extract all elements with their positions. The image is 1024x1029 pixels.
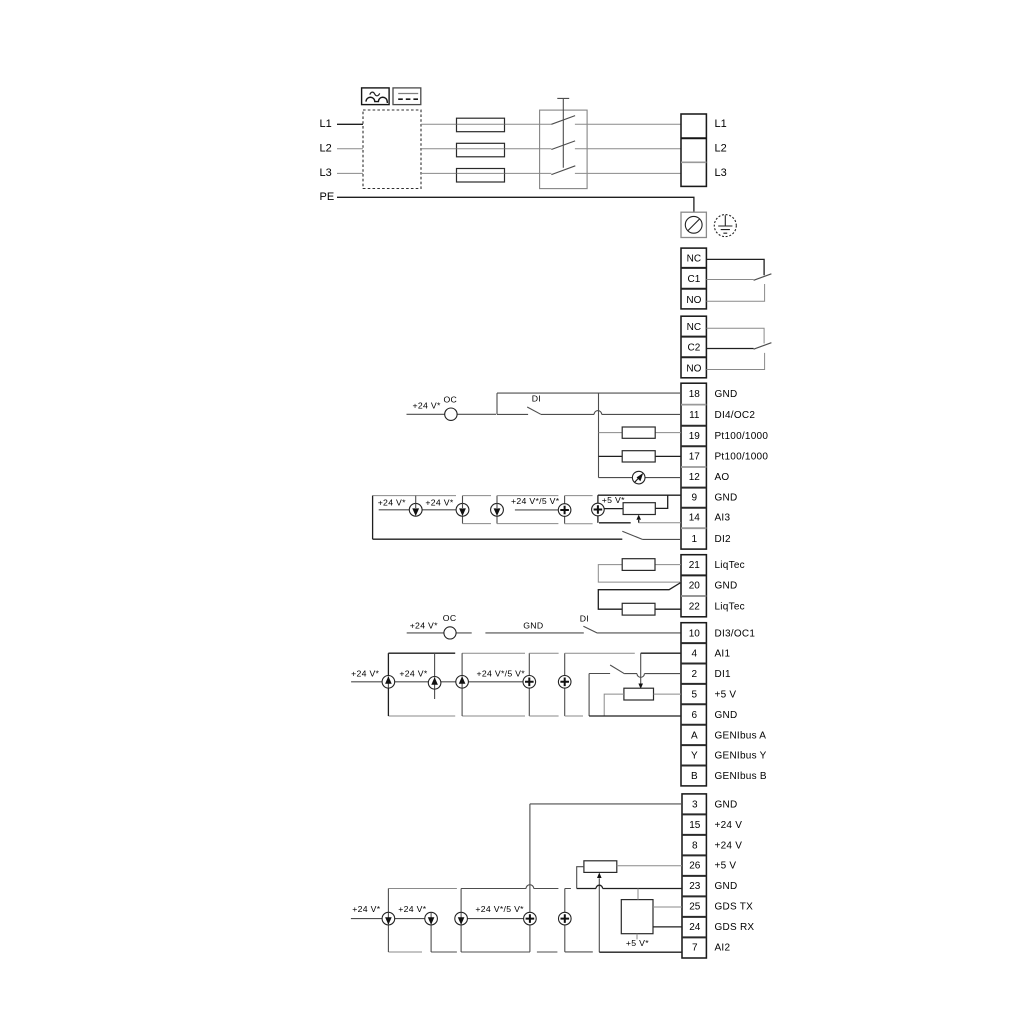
svg-text:+5 V: +5 V (715, 861, 737, 872)
svg-text:14: 14 (689, 513, 701, 524)
svg-text:+24 V*: +24 V* (351, 669, 379, 679)
svg-text:B: B (691, 771, 698, 782)
svg-text:Y: Y (691, 751, 698, 762)
svg-text:AI2: AI2 (715, 942, 731, 953)
svg-text:25: 25 (689, 902, 701, 913)
svg-text:GENIbus A: GENIbus A (715, 730, 767, 741)
svg-text:+24 V: +24 V (715, 840, 743, 851)
svg-text:5: 5 (692, 690, 698, 701)
svg-text:2: 2 (692, 669, 698, 680)
svg-text:LiqTec: LiqTec (715, 560, 745, 571)
svg-text:DI2: DI2 (715, 534, 732, 545)
svg-text:GND: GND (523, 621, 543, 631)
svg-text:18: 18 (689, 389, 701, 400)
svg-text:Pt100/1000: Pt100/1000 (715, 431, 769, 442)
svg-text:+24 V*/5 V*: +24 V*/5 V* (475, 904, 524, 914)
svg-text:7: 7 (692, 942, 698, 953)
svg-text:+24 V*/5 V*: +24 V*/5 V* (477, 669, 526, 679)
svg-text:19: 19 (689, 431, 701, 442)
svg-text:6: 6 (692, 710, 698, 721)
svg-text:A: A (691, 730, 698, 741)
svg-text:DI4/OC2: DI4/OC2 (715, 410, 756, 421)
svg-text:L3: L3 (320, 167, 332, 179)
svg-text:GND: GND (715, 800, 738, 811)
svg-text:AO: AO (715, 472, 730, 483)
svg-text:NC: NC (687, 322, 701, 333)
svg-text:10: 10 (689, 628, 701, 639)
svg-text:+24 V*/5 V*: +24 V*/5 V* (511, 496, 560, 506)
svg-text:GDS TX: GDS TX (715, 902, 754, 913)
svg-text:12: 12 (689, 472, 701, 483)
svg-text:15: 15 (689, 820, 701, 831)
svg-text:+24 V*: +24 V* (410, 621, 438, 631)
svg-text:GND: GND (715, 493, 738, 504)
svg-text:L2: L2 (320, 142, 332, 154)
svg-text:GND: GND (715, 581, 738, 592)
svg-text:24: 24 (689, 922, 701, 933)
svg-text:GDS RX: GDS RX (715, 922, 755, 933)
svg-text:GENIbus Y: GENIbus Y (715, 751, 767, 762)
svg-text:NC: NC (687, 254, 701, 265)
svg-text:PE: PE (320, 191, 335, 203)
svg-text:OC: OC (444, 394, 458, 404)
svg-text:+24 V*: +24 V* (413, 400, 441, 410)
svg-text:20: 20 (689, 581, 701, 592)
svg-text:23: 23 (689, 881, 701, 892)
svg-text:21: 21 (689, 560, 701, 571)
svg-text:AI3: AI3 (715, 513, 731, 524)
svg-text:C2: C2 (688, 343, 701, 354)
svg-text:8: 8 (692, 840, 698, 851)
svg-text:+5 V*: +5 V* (602, 495, 625, 505)
svg-text:DI: DI (580, 613, 589, 623)
svg-text:17: 17 (689, 452, 701, 463)
svg-text:4: 4 (692, 649, 698, 660)
svg-text:DI1: DI1 (715, 669, 732, 680)
svg-text:OC: OC (443, 613, 457, 623)
svg-text:+24 V*: +24 V* (352, 904, 380, 914)
svg-text:+24 V*: +24 V* (425, 498, 453, 508)
svg-text:GND: GND (715, 389, 738, 400)
svg-text:+24 V*: +24 V* (398, 904, 426, 914)
svg-text:L2: L2 (715, 142, 727, 154)
svg-text:1: 1 (692, 534, 698, 545)
svg-text:LiqTec: LiqTec (715, 601, 745, 612)
svg-text:GND: GND (715, 710, 738, 721)
svg-text:C1: C1 (688, 274, 701, 285)
svg-text:+5 V*: +5 V* (626, 938, 649, 948)
svg-text:+5 V: +5 V (715, 690, 737, 701)
svg-text:L1: L1 (320, 118, 332, 130)
svg-text:L1: L1 (715, 118, 727, 130)
svg-text:+24 V*: +24 V* (378, 498, 406, 508)
svg-text:11: 11 (689, 410, 700, 421)
svg-text:Pt100/1000: Pt100/1000 (715, 452, 769, 463)
svg-text:9: 9 (692, 493, 698, 504)
svg-text:GENIbus B: GENIbus B (715, 771, 767, 782)
svg-text:22: 22 (689, 601, 701, 612)
svg-text:AI1: AI1 (715, 649, 731, 660)
svg-text:26: 26 (689, 861, 701, 872)
svg-text:GND: GND (715, 881, 738, 892)
svg-text:+24 V*: +24 V* (399, 669, 427, 679)
svg-text:NO: NO (686, 363, 701, 374)
svg-text:DI: DI (532, 394, 541, 404)
svg-text:NO: NO (686, 295, 701, 306)
svg-text:3: 3 (692, 800, 698, 811)
svg-text:DI3/OC1: DI3/OC1 (715, 628, 756, 639)
svg-text:L3: L3 (715, 167, 727, 179)
svg-text:+24 V: +24 V (715, 820, 743, 831)
